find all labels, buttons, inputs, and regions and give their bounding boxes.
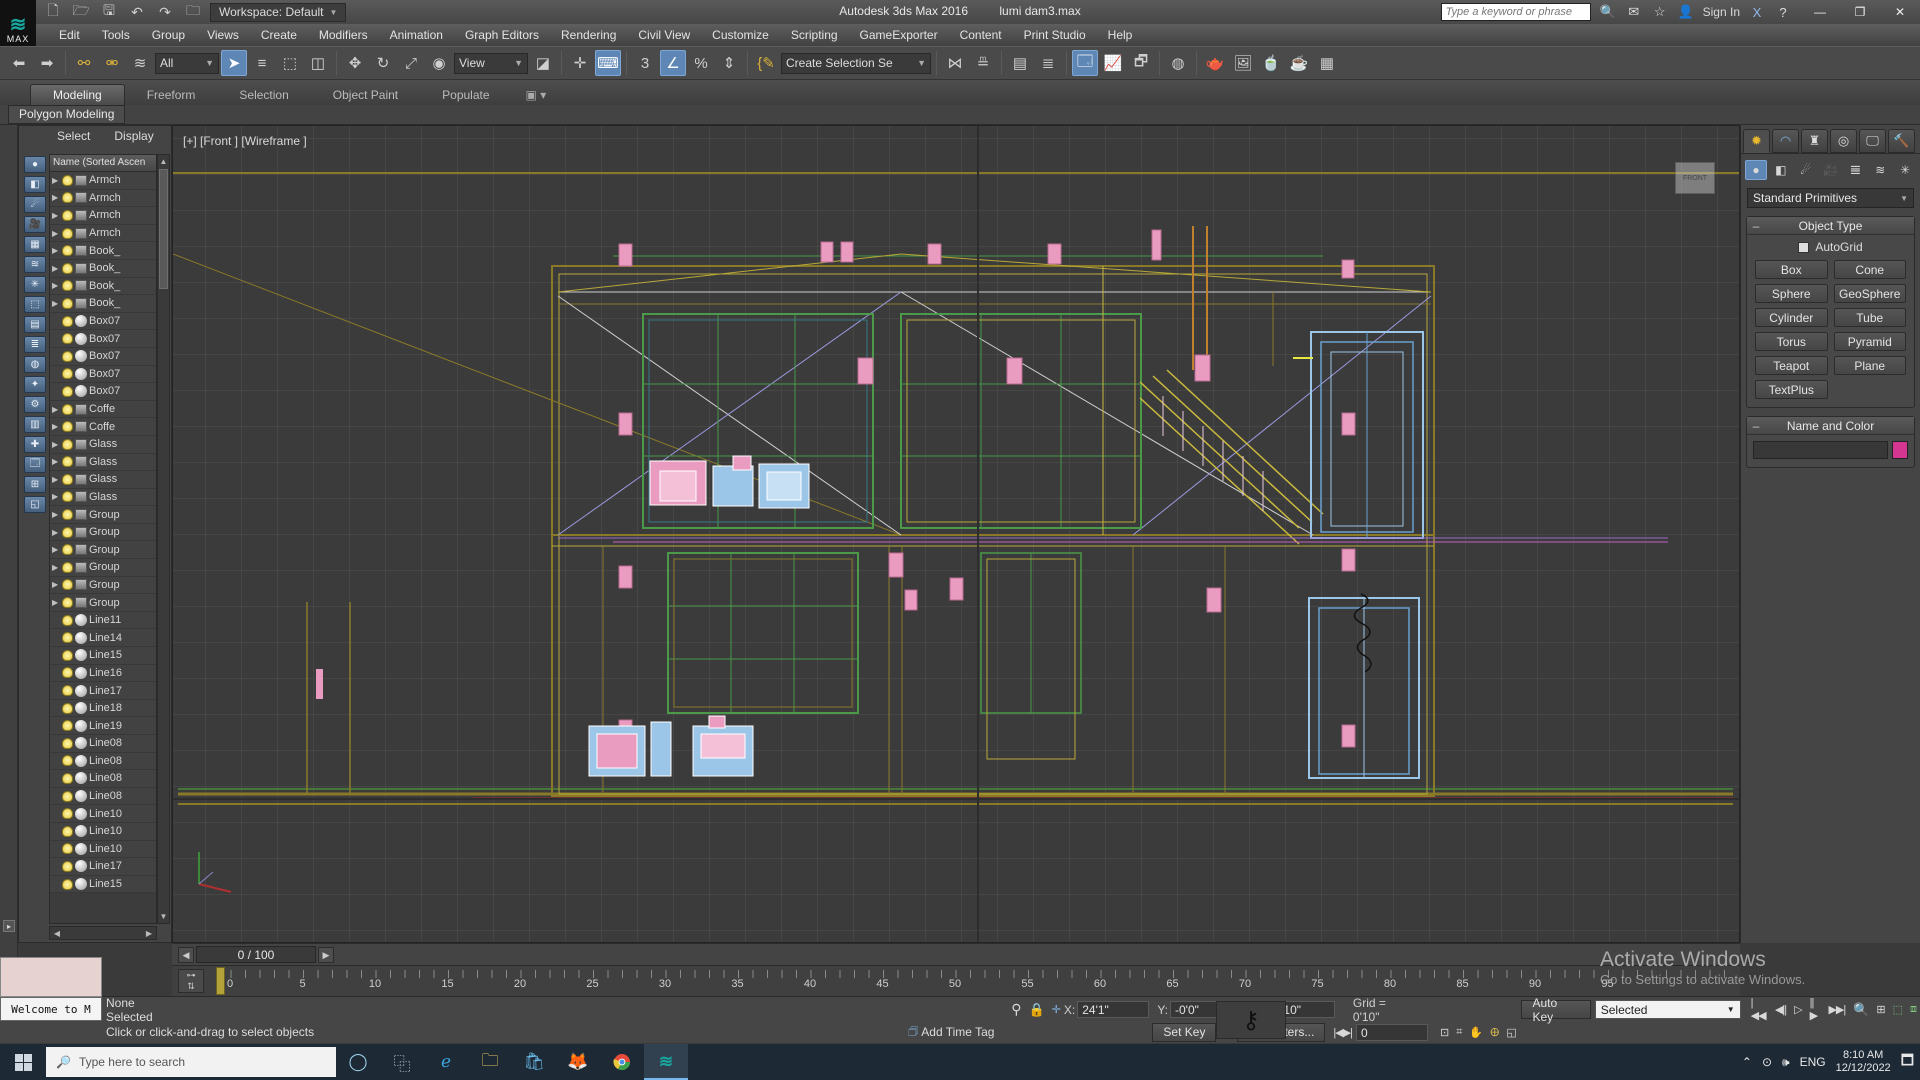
menu-scripting[interactable]: Scripting: [780, 28, 849, 42]
box-button[interactable]: Box: [1755, 260, 1828, 279]
explorer-filter-icon-9[interactable]: ≣: [24, 336, 46, 353]
task-view-icon[interactable]: ⿻: [380, 1044, 424, 1080]
add-time-tag[interactable]: Add Time Tag: [921, 1025, 994, 1039]
align-icon[interactable]: ≞: [970, 50, 996, 76]
explorer-filter-icon-14[interactable]: ✚: [24, 436, 46, 453]
scrollbar-thumb[interactable]: [159, 169, 168, 289]
list-item[interactable]: ▶Armch: [50, 207, 156, 225]
zoom-extents-all-icon[interactable]: ⧈: [1910, 1003, 1916, 1016]
expand-arrow-icon[interactable]: ▶: [52, 193, 60, 202]
visibility-bulb-icon[interactable]: [62, 351, 73, 362]
object-name[interactable]: Armch: [89, 227, 121, 239]
visibility-bulb-icon[interactable]: [62, 650, 73, 661]
utilities-tab-icon[interactable]: 🔨: [1888, 129, 1915, 153]
use-pivot-point-icon[interactable]: ◪: [530, 50, 556, 76]
object-name[interactable]: Coffe: [89, 421, 115, 433]
object-name[interactable]: Coffe: [89, 403, 115, 415]
systems-category-icon[interactable]: ✳: [1894, 160, 1916, 180]
object-name[interactable]: Line08: [89, 790, 122, 802]
list-item[interactable]: Box07: [50, 313, 156, 331]
pan-hand-icon[interactable]: ✋: [1469, 1026, 1482, 1039]
list-item[interactable]: Line17: [50, 682, 156, 700]
rectangular-selection-region-icon[interactable]: ⬚: [277, 50, 303, 76]
visibility-bulb-icon[interactable]: [62, 509, 73, 520]
application-menu-button[interactable]: ≋ MAX: [0, 0, 36, 46]
keyboard-shortcut-override-icon[interactable]: ⌨: [595, 50, 621, 76]
pyramid-button[interactable]: Pyramid: [1834, 332, 1907, 351]
object-name[interactable]: Line10: [89, 808, 122, 820]
render-setup-icon[interactable]: 🫖: [1202, 50, 1228, 76]
object-name[interactable]: Armch: [89, 174, 121, 186]
explorer-filter-icon-1[interactable]: ◧: [24, 176, 46, 193]
select-and-link-icon[interactable]: ⚯: [71, 50, 97, 76]
object-name[interactable]: Line19: [89, 720, 122, 732]
visibility-bulb-icon[interactable]: [62, 474, 73, 485]
selection-lock-icon[interactable]: 🔒: [1028, 1002, 1043, 1018]
communication-icon[interactable]: ✉: [1625, 4, 1643, 20]
list-item[interactable]: ▶Book_: [50, 295, 156, 313]
isolate-selection-icon[interactable]: ⚲: [1011, 1001, 1020, 1018]
select-and-place-icon[interactable]: ◉: [426, 50, 452, 76]
visibility-bulb-icon[interactable]: [62, 544, 73, 555]
list-item[interactable]: Line11: [50, 612, 156, 630]
visibility-bulb-icon[interactable]: [62, 421, 73, 432]
explorer-filter-icon-0[interactable]: ●: [24, 156, 46, 173]
viewcube[interactable]: FRONT: [1669, 154, 1721, 200]
next-frame-icon[interactable]: ▶: [318, 947, 334, 963]
autogrid-checkbox[interactable]: [1798, 242, 1809, 253]
expand-arrow-icon[interactable]: ▶: [52, 246, 60, 255]
visibility-bulb-icon[interactable]: [62, 597, 73, 608]
object-name[interactable]: Line17: [89, 685, 122, 697]
render-production-icon[interactable]: 🍵: [1258, 50, 1284, 76]
timeline-playhead[interactable]: [216, 967, 225, 995]
object-name[interactable]: Group: [89, 561, 120, 573]
visibility-bulb-icon[interactable]: [62, 685, 73, 696]
scroll-left-icon[interactable]: ◀: [50, 929, 64, 938]
play-animation-icon[interactable]: ▷: [1794, 1003, 1801, 1016]
undo-scene-icon[interactable]: ⬅: [6, 50, 32, 76]
object-name[interactable]: Box07: [89, 368, 120, 380]
object-name[interactable]: Line15: [89, 649, 122, 661]
next-key-icon[interactable]: ||▶: [1810, 997, 1821, 1022]
selection-filter-dropdown[interactable]: All ▼: [155, 53, 219, 74]
teapot-button[interactable]: Teapot: [1755, 356, 1828, 375]
maximize-button[interactable]: ❐: [1840, 0, 1880, 24]
select-and-move-icon[interactable]: ✥: [342, 50, 368, 76]
menu-group[interactable]: Group: [141, 28, 196, 42]
window-crossing-icon[interactable]: ◫: [305, 50, 331, 76]
ribbon-tab-object-paint[interactable]: Object Paint: [311, 85, 420, 105]
firefox-icon[interactable]: 🦊: [556, 1044, 600, 1080]
object-name[interactable]: Book_: [89, 297, 120, 309]
open-in-viewport-icon[interactable]: ▦: [1314, 50, 1340, 76]
viewcube-front-face[interactable]: FRONT: [1675, 162, 1715, 194]
geometry-class-dropdown[interactable]: Standard Primitives ▼: [1747, 188, 1914, 208]
expand-arrow-icon[interactable]: ▶: [52, 405, 60, 414]
menu-edit[interactable]: Edit: [48, 28, 91, 42]
expand-arrow-icon[interactable]: ▶: [52, 580, 60, 589]
explorer-filter-icon-10[interactable]: ◍: [24, 356, 46, 373]
field-of-view-icon[interactable]: ⌗: [1456, 1026, 1461, 1039]
shapes-category-icon[interactable]: ◧: [1770, 160, 1792, 180]
object-name[interactable]: Book_: [89, 262, 120, 274]
taskbar-search-input[interactable]: 🔍 Type here to search: [46, 1047, 336, 1077]
object-name[interactable]: Armch: [89, 209, 121, 221]
object-name[interactable]: Line08: [89, 772, 122, 784]
list-item[interactable]: ▶Group: [50, 594, 156, 612]
helpers-category-icon[interactable]: 𝌆: [1844, 160, 1866, 180]
menu-content[interactable]: Content: [949, 28, 1013, 42]
expand-arrow-icon[interactable]: ▶: [52, 211, 60, 220]
list-item[interactable]: ▶Book_: [50, 242, 156, 260]
search-icon[interactable]: 🔍: [1599, 4, 1617, 20]
expand-arrow-icon[interactable]: ▶: [52, 264, 60, 273]
visibility-bulb-icon[interactable]: [62, 245, 73, 256]
object-name-field[interactable]: [1753, 441, 1888, 459]
object-name[interactable]: Line14: [89, 632, 122, 644]
dock-expand-icon[interactable]: ▸: [3, 920, 15, 932]
3dsmax-taskbar-icon[interactable]: ≋: [644, 1044, 688, 1080]
sphere-button[interactable]: Sphere: [1755, 284, 1828, 303]
modify-tab-icon[interactable]: ◠: [1772, 129, 1799, 153]
expand-arrow-icon[interactable]: ▶: [52, 563, 60, 572]
visibility-bulb-icon[interactable]: [62, 280, 73, 291]
edit-named-selection-sets-icon[interactable]: {✎: [753, 50, 779, 76]
store-icon[interactable]: 🛍: [512, 1044, 556, 1080]
visibility-bulb-icon[interactable]: [62, 791, 73, 802]
list-item[interactable]: ▶Armch: [50, 172, 156, 190]
visibility-bulb-icon[interactable]: [62, 228, 73, 239]
explorer-filter-icon-6[interactable]: ✳: [24, 276, 46, 293]
select-object-icon[interactable]: ➤: [221, 50, 247, 76]
reference-coordinate-dropdown[interactable]: View ▼: [454, 53, 528, 74]
menu-rendering[interactable]: Rendering: [550, 28, 627, 42]
zoom-all-icon[interactable]: ⊞: [1876, 1003, 1884, 1016]
visibility-bulb-icon[interactable]: [62, 316, 73, 327]
help-search-input[interactable]: Type a keyword or phrase: [1441, 3, 1591, 21]
cortana-icon[interactable]: ◯: [336, 1044, 380, 1080]
object-name[interactable]: Box07: [89, 350, 120, 362]
snaps-toggle-icon[interactable]: 3: [632, 50, 658, 76]
list-item[interactable]: Line19: [50, 717, 156, 735]
visibility-bulb-icon[interactable]: [62, 579, 73, 590]
list-item[interactable]: Line08: [50, 735, 156, 753]
visibility-bulb-icon[interactable]: [62, 703, 73, 714]
zoom-region-icon[interactable]: ⊡: [1440, 1026, 1448, 1039]
start-button[interactable]: [0, 1044, 46, 1080]
select-by-name-icon[interactable]: ≡: [249, 50, 275, 76]
object-name[interactable]: Box07: [89, 333, 120, 345]
expand-arrow-icon[interactable]: ▶: [52, 176, 60, 185]
explorer-filter-icon-12[interactable]: ⚙: [24, 396, 46, 413]
tray-clock[interactable]: 8:10 AM 12/12/2022: [1836, 1049, 1891, 1075]
key-mode-toggle-icon[interactable]: |◀▶|: [1333, 1026, 1352, 1039]
menu-views[interactable]: Views: [196, 28, 250, 42]
plane-button[interactable]: Plane: [1834, 356, 1907, 375]
schematic-view-icon[interactable]: 🗗: [1128, 50, 1154, 76]
viewport-label[interactable]: [+] [Front ] [Wireframe ]: [183, 134, 307, 148]
close-button[interactable]: ✕: [1880, 0, 1920, 24]
name-color-rollout-header[interactable]: – Name and Color: [1747, 417, 1914, 435]
object-name[interactable]: Line08: [89, 737, 122, 749]
list-item[interactable]: ▶Glass: [50, 436, 156, 454]
set-key-button[interactable]: Set Key: [1152, 1023, 1216, 1042]
exchange-icon[interactable]: X: [1748, 5, 1766, 20]
scroll-down-icon[interactable]: ▼: [158, 910, 169, 923]
explorer-sort-header[interactable]: Name (Sorted Ascen: [50, 155, 156, 172]
tray-language[interactable]: ENG: [1800, 1055, 1826, 1069]
auto-key-button[interactable]: Auto Key: [1521, 1000, 1590, 1019]
list-item[interactable]: Line17: [50, 858, 156, 876]
unlink-selection-icon[interactable]: ⚮: [99, 50, 125, 76]
visibility-bulb-icon[interactable]: [62, 439, 73, 450]
list-item[interactable]: ▶Coffe: [50, 418, 156, 436]
list-item[interactable]: ▶Group: [50, 524, 156, 542]
ribbon-options-icon[interactable]: ▣ ▾: [512, 85, 561, 105]
scroll-up-icon[interactable]: ▲: [158, 155, 169, 168]
named-selection-sets-dropdown[interactable]: Create Selection Se ▼: [781, 53, 931, 74]
tray-volume-icon[interactable]: 🕪: [1782, 1055, 1790, 1070]
object-name[interactable]: Group: [89, 509, 120, 521]
edge-icon[interactable]: ℯ: [424, 1044, 468, 1080]
menu-gameexporter[interactable]: GameExporter: [849, 28, 949, 42]
visibility-bulb-icon[interactable]: [62, 491, 73, 502]
expand-arrow-icon[interactable]: ▶: [52, 422, 60, 431]
toggle-layer-explorer-icon[interactable]: ≣: [1035, 50, 1061, 76]
favorites-icon[interactable]: ☆: [1651, 4, 1669, 20]
object-name[interactable]: Armch: [89, 192, 121, 204]
user-icon[interactable]: 👤: [1677, 4, 1695, 20]
list-item[interactable]: ▶Book_: [50, 260, 156, 278]
time-tag-icon[interactable]: 🗇: [908, 1023, 917, 1042]
list-item[interactable]: ▶Glass: [50, 454, 156, 472]
list-item[interactable]: Line10: [50, 805, 156, 823]
textplus-button[interactable]: TextPlus: [1755, 380, 1828, 399]
list-item[interactable]: ▶Armch: [50, 225, 156, 243]
polygon-modeling-panel[interactable]: Polygon Modeling: [8, 105, 125, 124]
list-item[interactable]: ▶Group: [50, 541, 156, 559]
list-item[interactable]: Box07: [50, 348, 156, 366]
list-item[interactable]: Box07: [50, 330, 156, 348]
object-name[interactable]: Line10: [89, 843, 122, 855]
list-item[interactable]: Line08: [50, 788, 156, 806]
object-name[interactable]: Line18: [89, 702, 122, 714]
menu-print-studio[interactable]: Print Studio: [1013, 28, 1097, 42]
explorer-vertical-scrollbar[interactable]: ▲ ▼: [157, 154, 170, 924]
object-name[interactable]: Box07: [89, 385, 120, 397]
redo-scene-icon[interactable]: ➡: [34, 50, 60, 76]
angle-snap-toggle-icon[interactable]: ∠: [660, 50, 686, 76]
visibility-bulb-icon[interactable]: [62, 192, 73, 203]
menu-help[interactable]: Help: [1097, 28, 1144, 42]
visibility-bulb-icon[interactable]: [62, 738, 73, 749]
explorer-menu-select[interactable]: Select: [47, 129, 100, 148]
object-name[interactable]: Line17: [89, 860, 122, 872]
menu-customize[interactable]: Customize: [701, 28, 780, 42]
visibility-bulb-icon[interactable]: [62, 879, 73, 890]
maxscript-listener-button[interactable]: Welcome to M: [0, 997, 102, 1021]
expand-arrow-icon[interactable]: ▶: [52, 492, 60, 501]
toggle-ribbon-icon[interactable]: 🗔: [1072, 50, 1098, 76]
geosphere-button[interactable]: GeoSphere: [1834, 284, 1907, 303]
object-name[interactable]: Line15: [89, 878, 122, 890]
mirror-icon[interactable]: ⋈: [942, 50, 968, 76]
visibility-bulb-icon[interactable]: [62, 615, 73, 626]
object-name[interactable]: Group: [89, 579, 120, 591]
cameras-category-icon[interactable]: 🎥: [1820, 160, 1842, 180]
list-item[interactable]: Line10: [50, 823, 156, 841]
track-bar[interactable]: ⊶⇅ 0510152025303540455055606570758085909…: [172, 965, 1740, 996]
list-item[interactable]: Line14: [50, 629, 156, 647]
expand-arrow-icon[interactable]: ▶: [52, 598, 60, 607]
object-name[interactable]: Line08: [89, 755, 122, 767]
visibility-bulb-icon[interactable]: [62, 210, 73, 221]
object-type-rollout-header[interactable]: – Object Type: [1747, 217, 1914, 235]
visibility-bulb-icon[interactable]: [62, 843, 73, 854]
expand-arrow-icon[interactable]: ▶: [52, 528, 60, 537]
space-warps-category-icon[interactable]: ≋: [1869, 160, 1891, 180]
object-name[interactable]: Book_: [89, 280, 120, 292]
torus-button[interactable]: Torus: [1755, 332, 1828, 351]
menu-graph-editors[interactable]: Graph Editors: [454, 28, 550, 42]
menu-animation[interactable]: Animation: [379, 28, 454, 42]
hierarchy-tab-icon[interactable]: ♜: [1801, 129, 1828, 153]
bind-to-space-warp-icon[interactable]: ≋: [127, 50, 153, 76]
visibility-bulb-icon[interactable]: [62, 386, 73, 397]
zoom-extents-icon[interactable]: ⬚: [1893, 1003, 1902, 1016]
visibility-bulb-icon[interactable]: [62, 861, 73, 872]
explorer-filter-icon-8[interactable]: ▤: [24, 316, 46, 333]
front-viewport[interactable]: [+] [Front ] [Wireframe ] FRONT: [172, 125, 1740, 943]
time-slider-value[interactable]: 0 / 100: [196, 946, 316, 963]
list-item[interactable]: ▶Glass: [50, 489, 156, 507]
expand-arrow-icon[interactable]: ▶: [52, 457, 60, 466]
expand-arrow-icon[interactable]: ▶: [52, 281, 60, 290]
select-and-scale-icon[interactable]: ⤢: [398, 50, 424, 76]
list-item[interactable]: Line15: [50, 876, 156, 894]
list-item[interactable]: ▶Group: [50, 506, 156, 524]
menu-create[interactable]: Create: [250, 28, 308, 42]
visibility-bulb-icon[interactable]: [62, 456, 73, 467]
visibility-bulb-icon[interactable]: [62, 527, 73, 538]
explorer-filter-icon-5[interactable]: ≋: [24, 256, 46, 273]
object-name[interactable]: Group: [89, 544, 120, 556]
visibility-bulb-icon[interactable]: [62, 263, 73, 274]
list-item[interactable]: Box07: [50, 383, 156, 401]
list-item[interactable]: Line18: [50, 700, 156, 718]
cone-button[interactable]: Cone: [1834, 260, 1907, 279]
ribbon-tab-populate[interactable]: Populate: [420, 85, 511, 105]
action-center-icon[interactable]: 🗖: [1901, 1050, 1914, 1074]
ribbon-tab-selection[interactable]: Selection: [217, 85, 310, 105]
x-coordinate-field[interactable]: 24'1": [1077, 1001, 1149, 1018]
percent-snap-toggle-icon[interactable]: %: [688, 50, 714, 76]
visibility-bulb-icon[interactable]: [62, 808, 73, 819]
expand-arrow-icon[interactable]: ▶: [52, 440, 60, 449]
explorer-filter-icon-17[interactable]: ◱: [24, 496, 46, 513]
visibility-bulb-icon[interactable]: [62, 755, 73, 766]
sign-in-button[interactable]: Sign In: [1703, 5, 1740, 19]
spinner-snap-toggle-icon[interactable]: ⇕: [716, 50, 742, 76]
expand-arrow-icon[interactable]: ▶: [52, 229, 60, 238]
explorer-filter-icon-16[interactable]: ⊞: [24, 476, 46, 493]
tube-button[interactable]: Tube: [1834, 308, 1907, 327]
object-name[interactable]: Glass: [89, 456, 117, 468]
visibility-bulb-icon[interactable]: [62, 562, 73, 573]
object-name[interactable]: Line16: [89, 667, 122, 679]
list-item[interactable]: Line15: [50, 647, 156, 665]
visibility-bulb-icon[interactable]: [62, 632, 73, 643]
expand-arrow-icon[interactable]: ▶: [52, 299, 60, 308]
list-item[interactable]: Line10: [50, 841, 156, 859]
lights-category-icon[interactable]: ☄: [1795, 160, 1817, 180]
maxscript-mini-listener[interactable]: [0, 957, 102, 997]
ribbon-tab-modeling[interactable]: Modeling: [30, 84, 125, 105]
previous-key-icon[interactable]: ◀||: [1775, 1003, 1786, 1016]
maximize-viewport-toggle-icon[interactable]: ◱: [1506, 1026, 1515, 1039]
explorer-filter-icon-13[interactable]: ▥: [24, 416, 46, 433]
list-item[interactable]: ▶Armch: [50, 190, 156, 208]
explorer-filter-icon-4[interactable]: ▦: [24, 236, 46, 253]
previous-frame-icon[interactable]: ◀: [178, 947, 194, 963]
minimize-button[interactable]: —: [1800, 0, 1840, 24]
menu-civil-view[interactable]: Civil View: [627, 28, 701, 42]
list-item[interactable]: Line16: [50, 665, 156, 683]
explorer-filter-icon-11[interactable]: ✦: [24, 376, 46, 393]
explorer-filter-icon-15[interactable]: 🗔: [24, 456, 46, 473]
expand-arrow-icon[interactable]: ▶: [52, 475, 60, 484]
expand-arrow-icon[interactable]: ▶: [52, 510, 60, 519]
ribbon-tab-freeform[interactable]: Freeform: [125, 85, 218, 105]
file-explorer-icon[interactable]: 🗀: [468, 1044, 512, 1080]
object-color-swatch[interactable]: [1892, 441, 1908, 459]
geometry-category-icon[interactable]: ●: [1745, 160, 1767, 180]
explorer-filter-icon-2[interactable]: ☄: [24, 196, 46, 213]
object-name[interactable]: Glass: [89, 473, 117, 485]
object-name[interactable]: Box07: [89, 315, 120, 327]
menu-modifiers[interactable]: Modifiers: [308, 28, 379, 42]
motion-tab-icon[interactable]: ◎: [1830, 129, 1857, 153]
visibility-bulb-icon[interactable]: [62, 720, 73, 731]
object-name[interactable]: Book_: [89, 245, 120, 257]
list-item[interactable]: Box07: [50, 366, 156, 384]
explorer-filter-icon-7[interactable]: ⬚: [24, 296, 46, 313]
rendered-frame-window-icon[interactable]: 🖼: [1230, 50, 1256, 76]
key-mode-dropdown[interactable]: Selected ▼: [1595, 1000, 1741, 1019]
tray-network-icon[interactable]: ⊙: [1762, 1055, 1772, 1069]
visibility-bulb-icon[interactable]: [62, 333, 73, 344]
list-item[interactable]: Line08: [50, 770, 156, 788]
visibility-bulb-icon[interactable]: [62, 667, 73, 678]
orbit-icon[interactable]: 🜨: [1490, 1021, 1498, 1043]
tray-chevron-icon[interactable]: ⌃: [1742, 1055, 1752, 1069]
create-tab-icon[interactable]: ✹: [1743, 129, 1770, 153]
menu-tools[interactable]: Tools: [91, 28, 141, 42]
display-tab-icon[interactable]: 🖵: [1859, 129, 1886, 153]
object-name[interactable]: Glass: [89, 438, 117, 450]
list-item[interactable]: ▶Glass: [50, 471, 156, 489]
visibility-bulb-icon[interactable]: [62, 298, 73, 309]
trackbar-filter-icon[interactable]: ⊶⇅: [178, 969, 204, 993]
list-item[interactable]: ▶Book_: [50, 278, 156, 296]
chrome-icon[interactable]: [600, 1044, 644, 1080]
absolute-mode-icon[interactable]: ✛: [1052, 1003, 1060, 1016]
list-item[interactable]: ▶Group: [50, 577, 156, 595]
curve-editor-icon[interactable]: 📈: [1100, 50, 1126, 76]
material-editor-icon[interactable]: ◍: [1165, 50, 1191, 76]
current-frame-field[interactable]: 0: [1356, 1024, 1428, 1041]
